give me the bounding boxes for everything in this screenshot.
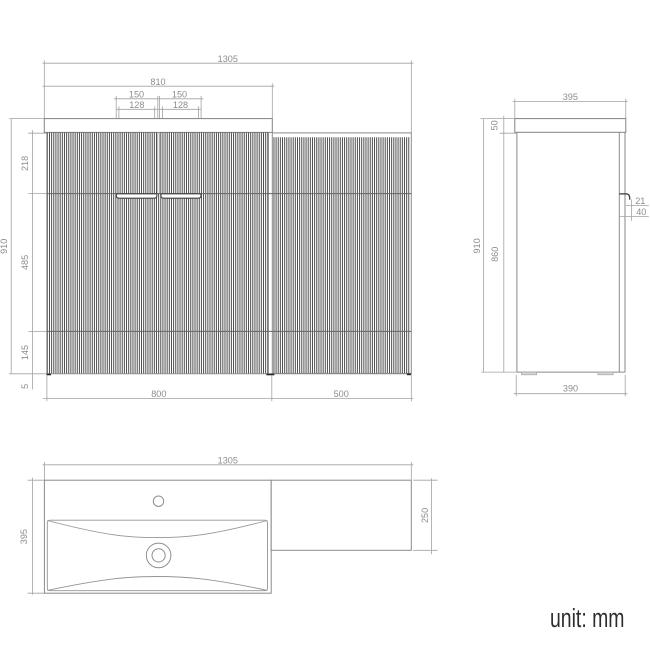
svg-text:150: 150 [129,90,144,100]
svg-text:21: 21 [635,196,645,206]
svg-text:150: 150 [172,90,187,100]
svg-text:unit: mm: unit: mm [550,605,625,633]
svg-text:1305: 1305 [218,455,238,465]
svg-text:910: 910 [472,238,482,253]
svg-text:485: 485 [20,255,30,270]
svg-text:250: 250 [420,508,430,523]
svg-text:50: 50 [489,120,499,130]
svg-text:390: 390 [563,384,578,394]
svg-text:218: 218 [20,156,30,171]
svg-text:1305: 1305 [218,54,238,64]
svg-text:40: 40 [636,207,646,217]
svg-text:395: 395 [19,529,29,544]
svg-text:810: 810 [150,77,165,87]
svg-text:5: 5 [20,384,30,389]
svg-text:910: 910 [0,239,9,254]
svg-text:145: 145 [20,345,30,360]
svg-text:500: 500 [334,389,349,399]
svg-text:860: 860 [490,247,500,262]
svg-text:800: 800 [151,389,166,399]
svg-text:128: 128 [173,100,188,110]
svg-text:128: 128 [129,100,144,110]
svg-text:395: 395 [563,92,578,102]
